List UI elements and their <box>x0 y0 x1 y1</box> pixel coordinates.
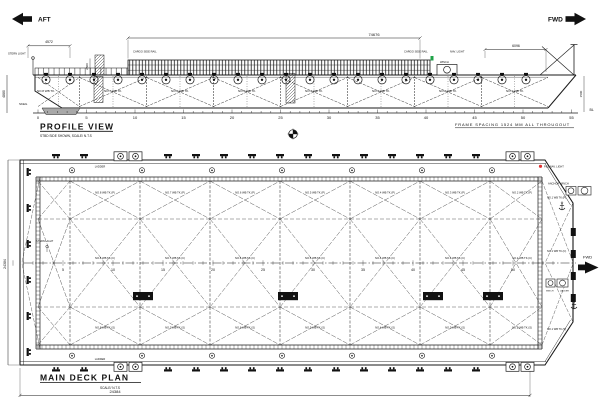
fairlead-center <box>491 355 493 357</box>
fwd-label-plan: FWD <box>583 255 592 260</box>
cleat-icon <box>309 156 311 158</box>
cleat-icon <box>445 156 447 158</box>
profile-frame-number: 0 <box>37 115 40 120</box>
stem-bitt-icon <box>571 250 576 258</box>
cleat-icon <box>281 156 283 158</box>
fitting-bolt <box>486 295 488 297</box>
roller-bracket <box>236 73 240 75</box>
anchor-winch-icon <box>566 187 591 196</box>
roller-bracket <box>428 73 432 75</box>
cleat-icon <box>388 369 396 371</box>
ladder-label-bow: LADDER <box>560 290 569 293</box>
internal-trunk <box>94 77 103 103</box>
deck-frame-number: 5 <box>62 268 64 272</box>
cleat-icon <box>29 277 31 279</box>
cleat-icon <box>221 367 223 369</box>
cleat-icon <box>309 367 311 369</box>
dim-stern-overhang: 4572 <box>45 40 53 44</box>
profile-tank-label: NO.5 WB TK. <box>238 89 256 93</box>
profile-tank-label: NO.1 WB TK. <box>506 89 524 93</box>
cleat-icon <box>164 154 172 156</box>
deck-frame-number: 20 <box>211 268 215 272</box>
frame-spacing-note: FRAME SPACING 1524 MM ALL THROUGOUT <box>455 122 570 127</box>
roller-hub <box>453 79 455 81</box>
bitt-post-center <box>120 155 122 157</box>
cleat-icon <box>193 156 195 158</box>
fairlead-center <box>351 355 353 357</box>
bitt-post-center <box>527 155 529 157</box>
roller-hub <box>141 79 143 81</box>
roller-bracket <box>116 73 120 75</box>
deck-tank-label: NO.3 WB TK.(P) <box>445 191 465 195</box>
profile-tank-label: NO.3 WB TK. <box>372 89 390 93</box>
profile-frame-number: 35 <box>375 115 380 120</box>
cleat-icon <box>277 367 279 369</box>
cleat-icon <box>276 154 284 156</box>
deck-tank-label: NO.7 WB TK.(P) <box>165 191 185 195</box>
cleat-icon <box>29 349 31 351</box>
deck-frame-scale: 5101520253035404550 <box>13 260 553 272</box>
cleat-icon <box>248 369 256 371</box>
cleat-icon <box>393 367 395 369</box>
stern-light-icon <box>32 57 35 75</box>
cleat-icon <box>361 156 363 158</box>
cleat-icon <box>81 156 83 158</box>
cleat-icon <box>225 156 227 158</box>
roller-hub <box>405 79 407 81</box>
roller-hub <box>189 79 191 81</box>
roller-hub <box>117 79 119 81</box>
bow-winch-icon <box>546 279 568 287</box>
fwd-plan-arrow-icon <box>578 262 599 274</box>
roller-hub <box>93 79 95 81</box>
cleat-icon <box>416 154 424 156</box>
roller-bracket <box>260 73 264 75</box>
roller-hub <box>285 79 287 81</box>
cleat-icon <box>221 156 223 158</box>
roller-bracket <box>476 73 480 75</box>
nav-light-red-icon <box>539 165 542 168</box>
cleat-icon <box>361 367 363 369</box>
roller-bracket <box>380 73 384 75</box>
stern-side-rail <box>35 68 128 75</box>
deck-tank-label: NO.5 WB TK.(S) <box>305 326 325 330</box>
drawing-canvas: AFT FWD 74676 <box>0 0 600 400</box>
deck-tank-label: NO.3 WB TK.(C) <box>445 256 465 260</box>
roller-bracket <box>404 73 408 75</box>
bitt-post-center <box>135 366 137 368</box>
cleat-icon <box>249 367 251 369</box>
cleat-icon <box>29 281 31 283</box>
bitt-post-center <box>512 366 514 368</box>
centerline-symbol-icon <box>288 129 299 140</box>
winch-label: WINCH <box>440 60 449 64</box>
roller-hub <box>525 79 527 81</box>
deck-tank-label: NO.6 WB TK.(P) <box>235 191 255 195</box>
cleat-icon <box>53 367 55 369</box>
cleat-icon <box>305 367 307 369</box>
cleat-icon <box>29 353 31 355</box>
cleat-icon <box>337 156 339 158</box>
winch-label-plan: WINCH <box>546 291 554 293</box>
deck-tank-label: NO.7 WB TK.(C) <box>165 256 185 260</box>
dim-deck-breadth: 24384 <box>3 259 7 269</box>
cleat-icon <box>27 348 29 356</box>
roller-bracket <box>212 73 216 75</box>
cleat-icon <box>192 154 200 156</box>
roller-hub <box>501 79 503 81</box>
fitting-bolt <box>438 295 440 297</box>
cleat-icon <box>421 367 423 369</box>
orientation-header: AFT FWD <box>12 13 586 25</box>
cleat-icon <box>29 245 31 247</box>
profile-title: PROFILE VIEW <box>40 122 114 132</box>
fairlead-center <box>421 355 423 357</box>
profile-frame-number: 15 <box>181 115 186 120</box>
cleat-icon <box>52 369 60 371</box>
deck-fitting <box>278 292 298 300</box>
main-deck-plan: 24384 24384 5101520253035404550 NO.8 WB … <box>3 152 599 397</box>
internal-trunk <box>286 74 295 104</box>
cleat-icon <box>477 367 479 369</box>
cleat-icon <box>449 156 451 158</box>
roller-bracket <box>332 73 336 75</box>
profile-frame-number: 30 <box>327 115 332 120</box>
cleat-icon <box>164 369 172 371</box>
cleat-icon <box>165 156 167 158</box>
aft-label: AFT <box>38 17 51 24</box>
fairlead-center <box>281 355 283 357</box>
deck-frame-number: 10 <box>111 268 115 272</box>
deck-tank-label: NO.5 WB TK.(C) <box>305 256 325 260</box>
cleat-icon <box>253 156 255 158</box>
stern-light-label-plan: STERN LIGHT <box>36 239 54 243</box>
deck-tank-label: NO.4 WB TK.(C) <box>375 256 395 260</box>
aft-arrow-icon <box>12 13 32 25</box>
cleat-icon <box>27 204 29 212</box>
profile-frame-number: 20 <box>230 115 235 120</box>
cleat-icon <box>29 313 31 315</box>
fairlead-center <box>491 170 493 172</box>
cleat-icon <box>477 156 479 158</box>
cleat-icon <box>360 369 368 371</box>
cleat-icon <box>417 156 419 158</box>
cleat-icon <box>416 369 424 371</box>
roller-hub <box>309 79 311 81</box>
drawing-sheet: AFT FWD 74676 <box>0 0 600 400</box>
cleat-icon <box>337 367 339 369</box>
deck-frame-number: 40 <box>411 268 415 272</box>
cleat-icon <box>27 168 29 176</box>
nav-light-green-icon <box>431 56 434 61</box>
fitting-bolt <box>498 295 500 297</box>
cleat-icon <box>253 367 255 369</box>
fitting-bolt <box>281 295 283 297</box>
fitting-bolt <box>136 295 138 297</box>
deck-frame-number: 45 <box>461 268 465 272</box>
ladder-tower <box>95 55 104 75</box>
dim-bow-overhang: 6096 <box>512 44 520 48</box>
profile-hull <box>33 75 578 113</box>
fitting-bolt <box>148 295 150 297</box>
cargo-rail-label-right: CARGO SIDE RAIL <box>404 50 428 54</box>
cargo-side-rail <box>128 60 430 75</box>
fairlead-center <box>351 170 353 172</box>
cleat-icon <box>472 369 480 371</box>
deck-fitting <box>483 292 503 300</box>
roller-bracket <box>68 73 72 75</box>
deck-tank-label: NO.3 WB TK.(S) <box>445 326 465 330</box>
profile-tank-label: NO.2 WB TK. <box>439 89 457 93</box>
profile-frame-number: 25 <box>278 115 283 120</box>
cleat-icon <box>29 317 31 319</box>
cleat-icon <box>29 169 31 171</box>
roller-bracket <box>140 73 144 75</box>
cleat-icon <box>197 156 199 158</box>
cleat-icon <box>389 156 391 158</box>
roller-hub <box>333 79 335 81</box>
deck-tank-label: NO.8 WB TK.(C) <box>95 256 115 260</box>
deck-tank-label: NO.2 WB TK.(P) <box>512 191 532 195</box>
cleat-icon <box>27 276 29 284</box>
cargo-rail-label-left: CARGO SIDE RAIL <box>133 50 157 54</box>
roller-hub <box>45 79 47 81</box>
cleat-icon <box>473 156 475 158</box>
cleat-icon <box>332 154 340 156</box>
roller-bracket <box>356 73 360 75</box>
deck-frame-number: 15 <box>161 268 165 272</box>
roller-hub <box>237 79 239 81</box>
cleat-icon <box>249 156 251 158</box>
cleat-icon <box>389 367 391 369</box>
profile-frame-scale: 0510152025303540455055 <box>37 110 575 120</box>
cleat-icon <box>80 154 88 156</box>
ladder-label-bottom: LADDER <box>95 357 106 361</box>
anchor-icon <box>559 202 565 210</box>
cleat-icon <box>277 156 279 158</box>
fairlead-center <box>211 170 213 172</box>
roller-hub <box>69 79 71 81</box>
deck-plan-subtitle: SCALE/ N.T.S <box>100 386 120 390</box>
cleat-icon <box>85 156 87 158</box>
bow-tank-label-stbd: NO.1 WB TK.(S) <box>547 327 566 331</box>
fitting-bolt <box>426 295 428 297</box>
profile-frame-number: 10 <box>133 115 138 120</box>
cleat-icon <box>225 367 227 369</box>
stem-bitt-icon <box>571 272 576 280</box>
fairlead-center <box>421 170 423 172</box>
deck-tank-label: NO.6 WB TK.(S) <box>235 326 255 330</box>
roller-bracket <box>524 73 528 75</box>
cleat-icon <box>421 156 423 158</box>
deck-tank-label: NO.5 WB TK.(P) <box>305 191 325 195</box>
cleat-icon <box>333 156 335 158</box>
fairlead-center <box>211 355 213 357</box>
deck-tank-label: NO.7 WB TK.(S) <box>165 326 185 330</box>
deck-tank-label: NO.8 WB TK.(S) <box>95 326 115 330</box>
deck-tank-label: NO.6 WB TK.(C) <box>235 256 255 260</box>
bitt-post-center <box>512 155 514 157</box>
cleat-icon <box>29 241 31 243</box>
cleat-icon <box>169 367 171 369</box>
dim-bow-rake-height: 1500 <box>579 90 583 97</box>
roller-bracket <box>308 73 312 75</box>
roller-bracket <box>44 73 48 75</box>
fitting-bolt <box>293 295 295 297</box>
deck-plan-title: MAIN DECK PLAN <box>40 373 129 383</box>
fwd-label: FWD <box>548 17 563 24</box>
cleat-icon <box>52 154 60 156</box>
bow-mast-lattice <box>540 45 578 76</box>
roller-hub <box>165 79 167 81</box>
profile-frame-number: 55 <box>569 115 574 120</box>
cleat-icon <box>333 367 335 369</box>
skeg-label: SKEG <box>19 102 28 106</box>
deck-frame-number: 25 <box>261 268 265 272</box>
cleat-icon <box>57 156 59 158</box>
cleat-icon <box>81 367 83 369</box>
deck-frame-number: 30 <box>311 268 315 272</box>
profile-tank-label: NO.7 WB TK. <box>104 89 122 93</box>
deck-tank-label: NO.4 WB TK.(P) <box>375 191 395 195</box>
cleat-icon <box>281 367 283 369</box>
cleat-icon <box>80 369 88 371</box>
stem-bitt-icon <box>571 228 576 236</box>
fairlead-center <box>281 170 283 172</box>
deck-fitting <box>423 292 443 300</box>
roller-hub <box>477 79 479 81</box>
profile-frame-number: 50 <box>521 115 526 120</box>
deck-tank-label: NO.2 WB TK.(C) <box>512 256 532 260</box>
cleat-icon <box>444 369 452 371</box>
roller-bracket <box>92 73 96 75</box>
cleat-icon <box>360 154 368 156</box>
cleat-icon <box>29 173 31 175</box>
dim-overall-length: 74676 <box>368 32 380 37</box>
cleat-icon <box>388 154 396 156</box>
fairlead-center <box>141 170 143 172</box>
nav-light-label-plan: P&S NAV. LIGHT <box>544 165 564 169</box>
bitt-post-center <box>135 155 137 157</box>
cleat-icon <box>220 154 228 156</box>
cleat-icon <box>305 156 307 158</box>
bow-tank-label-port: NO.1 WB TK.(P) <box>547 196 566 200</box>
cleat-icon <box>165 367 167 369</box>
profile-tank-label: NO.6 WB TK. <box>171 89 189 93</box>
cleat-icon <box>276 369 284 371</box>
roller-bracket <box>284 73 288 75</box>
cleat-icon <box>304 154 312 156</box>
deck-tank-labels: NO.8 WB TK.(P)NO.7 WB TK.(P)NO.6 WB TK.(… <box>95 191 532 330</box>
stem-bitt-icon <box>571 294 576 302</box>
cleat-icon <box>417 367 419 369</box>
roller-bracket <box>188 73 192 75</box>
cleat-icon <box>192 369 200 371</box>
cleat-icon <box>57 367 59 369</box>
bitt-post-center <box>120 366 122 368</box>
profile-tank-label: NO.4 WB TK. <box>305 89 323 93</box>
dim-depth: 4880 <box>2 90 6 98</box>
cleat-icon <box>445 367 447 369</box>
roller-bracket <box>164 73 168 75</box>
profile-subtitle: STBD SIDE SHOWN, SCALE/ N.T.S <box>40 134 92 138</box>
roller-hub <box>213 79 215 81</box>
profile-tank-label: NO.8 WB TK. <box>37 89 55 93</box>
cleat-icon <box>29 209 31 211</box>
cleat-icon <box>393 156 395 158</box>
ladder-label-top: LADDER <box>95 165 106 169</box>
deck-fitting <box>133 292 153 300</box>
roller-hub <box>357 79 359 81</box>
cleat-icon <box>473 367 475 369</box>
cleat-icon <box>472 154 480 156</box>
cleat-icon <box>220 369 228 371</box>
nav-light-label: NAV. LIGHT <box>450 50 465 54</box>
cleat-icon <box>365 367 367 369</box>
profile-frame-number: 40 <box>424 115 429 120</box>
roller-hub <box>261 79 263 81</box>
fairlead-center <box>71 355 73 357</box>
roller-hub <box>429 79 431 81</box>
cleat-icon <box>365 156 367 158</box>
fairlead-center <box>141 355 143 357</box>
anchor-winch-label: ANCHOR WINCH <box>548 182 569 186</box>
cleat-icon <box>197 367 199 369</box>
deck-tank-label: NO.8 WB TK.(P) <box>95 191 115 195</box>
deck-frame-number: 35 <box>361 268 365 272</box>
stern-light-label: STERN LIGHT <box>8 52 26 56</box>
profile-frame-number: 5 <box>85 115 88 120</box>
cleat-icon <box>27 312 29 320</box>
baseline-label: BL <box>590 108 594 112</box>
cleat-icon <box>27 240 29 248</box>
fairlead-center <box>71 170 73 172</box>
fwd-arrow-icon <box>566 13 587 25</box>
cleat-icon <box>169 156 171 158</box>
cleat-icon <box>449 367 451 369</box>
roller-bracket <box>452 73 456 75</box>
profile-view: 74676 4572 6096 4880 2500 1500 BL SKEG S… <box>2 32 594 140</box>
anchor-icon <box>571 301 577 309</box>
deck-frame-number: 50 <box>511 268 515 272</box>
cleat-icon <box>53 156 55 158</box>
roller-hub <box>381 79 383 81</box>
cleat-icon <box>444 154 452 156</box>
roller-bracket <box>500 73 504 75</box>
cleat-icon <box>29 205 31 207</box>
cleat-icon <box>193 367 195 369</box>
deck-tank-label: NO.4 WB TK.(S) <box>375 326 395 330</box>
deck-tank-label: NO.2 WB TK.(S) <box>512 326 532 330</box>
bow-tank-label-center: NO.1 WB TK.(C) <box>547 249 566 253</box>
cleat-icon <box>332 369 340 371</box>
cleat-icon <box>304 369 312 371</box>
cleat-icon <box>85 367 87 369</box>
profile-frame-number: 45 <box>472 115 477 120</box>
cleat-icon <box>248 154 256 156</box>
deck-hardware <box>27 152 576 372</box>
bitt-post-center <box>527 366 529 368</box>
